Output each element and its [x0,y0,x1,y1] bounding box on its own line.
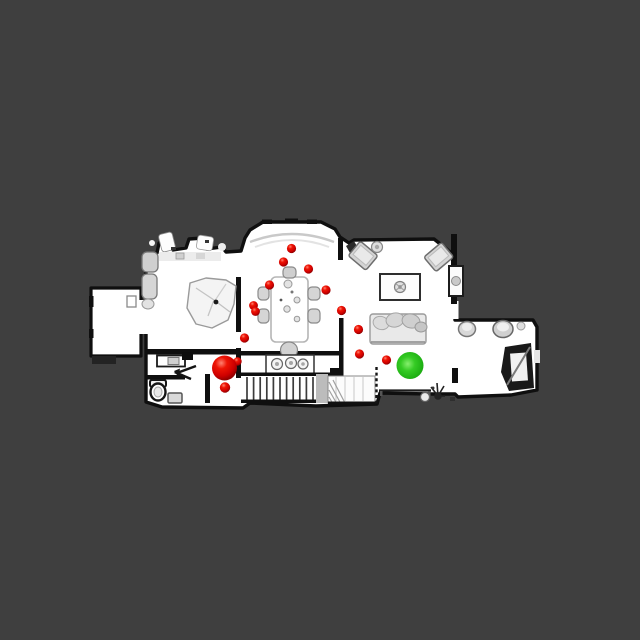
waypoint-marker [240,333,249,342]
goal-marker [397,352,424,379]
scene-viewport[interactable] [0,0,640,640]
waypoint-marker [287,244,296,253]
waypoint-marker [304,264,313,273]
waypoint-marker [279,257,288,266]
bath-cabinet [168,393,182,403]
kitchen-cabinet [142,274,157,299]
waypoint-marker [355,349,364,358]
waypoint-marker [265,280,274,289]
waypoint-marker [382,355,391,364]
waypoint-marker [220,382,230,392]
start-marker [212,356,237,381]
dining-chair [283,267,296,278]
scene-render [0,0,640,640]
waypoint-marker [337,306,346,315]
dining-chair [308,287,320,300]
sideboard [266,355,314,374]
waypoint-marker [354,325,363,334]
dining-chair [308,309,320,323]
waypoint-marker [251,307,260,316]
stair-landing [316,374,328,403]
left-wing-room [89,288,141,364]
sofa [370,311,427,344]
waypoint-marker [321,285,330,294]
kitchen-cabinet [142,252,158,272]
